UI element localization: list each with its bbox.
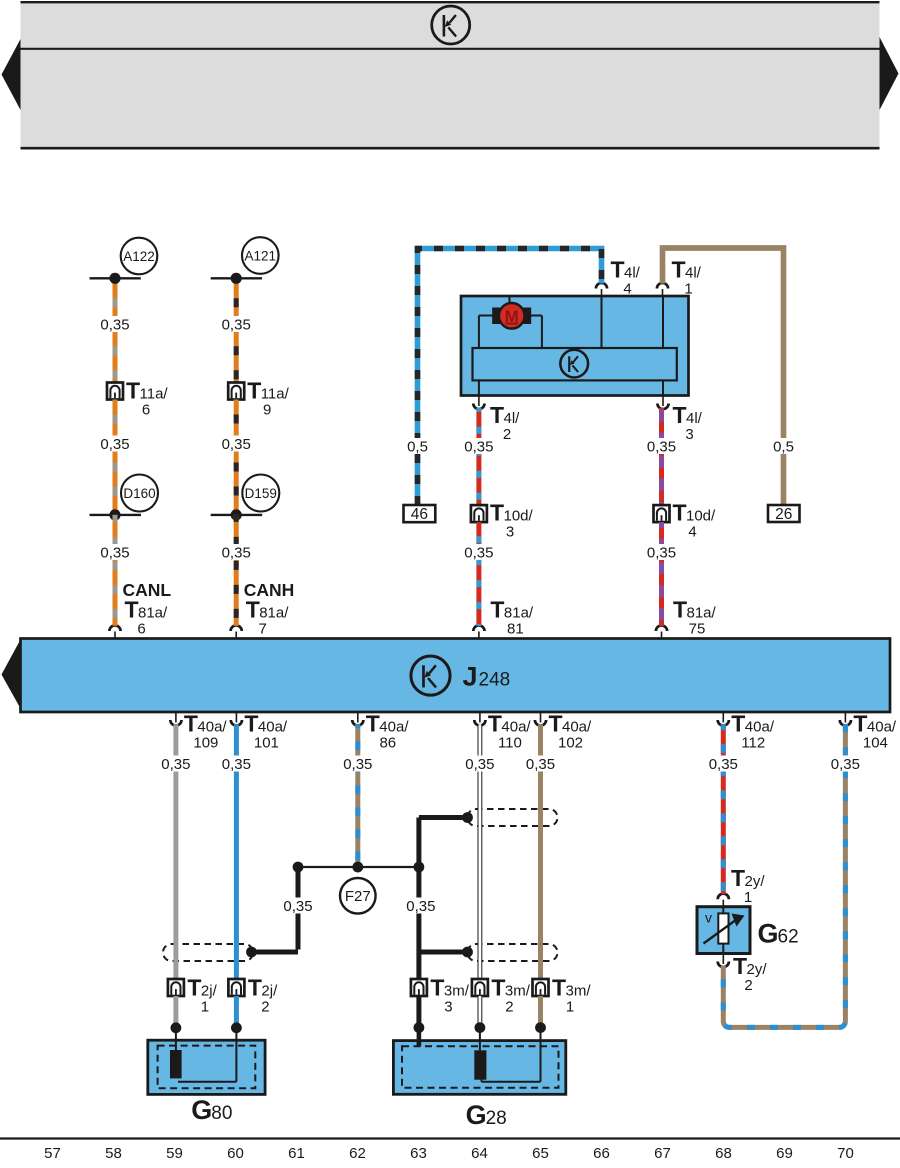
svg-text:0,35: 0,35 <box>831 756 860 773</box>
svg-text:67: 67 <box>654 1145 671 1162</box>
svg-text:81a/: 81a/ <box>138 605 168 622</box>
svg-text:T: T <box>187 975 201 1001</box>
svg-text:G: G <box>466 1100 487 1130</box>
svg-text:T: T <box>733 953 747 979</box>
svg-text:63: 63 <box>410 1145 427 1162</box>
svg-text:T: T <box>248 975 262 1001</box>
svg-text:0,5: 0,5 <box>773 438 794 455</box>
svg-text:68: 68 <box>715 1145 732 1162</box>
svg-text:0,35: 0,35 <box>343 756 372 773</box>
svg-text:T: T <box>731 711 745 737</box>
svg-text:40a/: 40a/ <box>867 719 897 736</box>
svg-text:4: 4 <box>688 524 696 541</box>
svg-text:4l/: 4l/ <box>685 265 702 282</box>
svg-text:2y/: 2y/ <box>747 961 768 978</box>
svg-text:G: G <box>191 1095 212 1125</box>
svg-text:2: 2 <box>505 999 513 1016</box>
svg-text:T: T <box>611 257 625 283</box>
svg-text:v: v <box>705 910 712 926</box>
svg-text:80: 80 <box>211 1103 232 1124</box>
svg-text:11a/: 11a/ <box>261 386 290 403</box>
svg-text:D159: D159 <box>245 486 277 501</box>
svg-text:60: 60 <box>227 1145 244 1162</box>
svg-text:0,35: 0,35 <box>464 544 493 561</box>
svg-text:2j/: 2j/ <box>261 983 278 1000</box>
svg-text:112: 112 <box>741 735 765 752</box>
svg-text:0,35: 0,35 <box>222 756 251 773</box>
svg-text:0,35: 0,35 <box>647 544 676 561</box>
svg-text:3: 3 <box>506 524 514 541</box>
svg-text:1: 1 <box>566 999 574 1016</box>
svg-text:9: 9 <box>263 402 271 419</box>
svg-text:T: T <box>430 975 444 1001</box>
svg-text:58: 58 <box>105 1145 122 1162</box>
svg-text:2y/: 2y/ <box>745 873 766 890</box>
svg-text:64: 64 <box>471 1145 488 1162</box>
svg-text:28: 28 <box>486 1108 507 1129</box>
svg-text:T: T <box>491 975 505 1001</box>
svg-text:1: 1 <box>744 889 752 906</box>
svg-text:0,35: 0,35 <box>222 436 251 453</box>
svg-text:40a/: 40a/ <box>197 719 227 736</box>
svg-text:2: 2 <box>261 999 269 1016</box>
svg-text:T: T <box>673 597 687 623</box>
svg-text:81a/: 81a/ <box>687 605 717 622</box>
svg-text:0,35: 0,35 <box>465 756 494 773</box>
svg-text:2: 2 <box>503 426 511 443</box>
svg-text:86: 86 <box>379 735 396 752</box>
svg-text:101: 101 <box>254 735 279 752</box>
svg-text:T: T <box>247 378 261 404</box>
svg-text:40a/: 40a/ <box>562 719 592 736</box>
svg-text:T: T <box>488 711 502 737</box>
svg-text:59: 59 <box>166 1145 183 1162</box>
svg-text:T: T <box>490 500 504 526</box>
svg-text:57: 57 <box>44 1145 61 1162</box>
svg-text:T: T <box>853 711 867 737</box>
svg-text:40a/: 40a/ <box>258 719 288 736</box>
svg-text:0,35: 0,35 <box>406 898 435 915</box>
svg-text:T: T <box>731 865 745 891</box>
svg-text:0,35: 0,35 <box>222 544 251 561</box>
svg-text:40a/: 40a/ <box>745 719 775 736</box>
svg-text:T: T <box>184 711 198 737</box>
svg-text:T: T <box>366 711 380 737</box>
svg-text:3: 3 <box>444 999 452 1016</box>
svg-text:T: T <box>244 711 258 737</box>
svg-text:0,35: 0,35 <box>161 756 190 773</box>
svg-text:75: 75 <box>689 621 706 638</box>
svg-text:T: T <box>673 500 687 526</box>
svg-text:104: 104 <box>863 735 888 752</box>
svg-text:A121: A121 <box>245 248 277 263</box>
svg-text:F27: F27 <box>345 888 371 905</box>
svg-text:70: 70 <box>837 1145 854 1162</box>
svg-text:T: T <box>126 378 140 404</box>
svg-text:4l/: 4l/ <box>686 410 703 427</box>
svg-text:4l/: 4l/ <box>504 410 521 427</box>
svg-text:3m/: 3m/ <box>444 983 470 1000</box>
svg-text:T: T <box>490 402 504 428</box>
svg-text:3: 3 <box>685 426 693 443</box>
svg-text:62: 62 <box>349 1145 366 1162</box>
svg-text:2j/: 2j/ <box>201 983 218 1000</box>
svg-text:0,35: 0,35 <box>709 756 738 773</box>
svg-text:0,35: 0,35 <box>526 756 555 773</box>
svg-text:81a/: 81a/ <box>259 605 289 622</box>
svg-text:0,35: 0,35 <box>283 898 312 915</box>
svg-text:40a/: 40a/ <box>501 719 531 736</box>
svg-text:10d/: 10d/ <box>686 508 716 525</box>
svg-text:2: 2 <box>744 977 752 994</box>
svg-text:3m/: 3m/ <box>505 983 531 1000</box>
svg-text:46: 46 <box>411 506 428 523</box>
svg-text:110: 110 <box>498 735 522 752</box>
svg-text:T: T <box>125 597 139 623</box>
svg-text:T: T <box>672 257 686 283</box>
svg-text:69: 69 <box>776 1145 793 1162</box>
svg-text:0,35: 0,35 <box>100 544 129 561</box>
svg-text:0,35: 0,35 <box>647 438 676 455</box>
svg-text:109: 109 <box>193 735 218 752</box>
svg-text:26: 26 <box>775 506 792 523</box>
svg-text:G: G <box>758 919 779 949</box>
svg-text:0,35: 0,35 <box>100 316 129 333</box>
svg-text:T: T <box>552 975 566 1001</box>
svg-text:T: T <box>549 711 563 737</box>
svg-text:J: J <box>463 662 478 692</box>
svg-text:81: 81 <box>507 621 524 638</box>
svg-text:6: 6 <box>137 621 145 638</box>
svg-text:3m/: 3m/ <box>566 983 592 1000</box>
svg-text:11a/: 11a/ <box>140 386 169 403</box>
svg-text:0,35: 0,35 <box>222 316 251 333</box>
svg-text:T: T <box>246 597 260 623</box>
svg-text:66: 66 <box>593 1145 610 1162</box>
svg-text:102: 102 <box>558 735 583 752</box>
svg-text:1: 1 <box>201 999 209 1016</box>
svg-text:D160: D160 <box>123 486 155 501</box>
svg-text:7: 7 <box>259 621 267 638</box>
svg-text:T: T <box>673 402 687 428</box>
svg-text:0,35: 0,35 <box>100 436 129 453</box>
svg-text:248: 248 <box>479 670 511 691</box>
svg-text:61: 61 <box>288 1145 305 1162</box>
svg-text:65: 65 <box>532 1145 549 1162</box>
svg-text:6: 6 <box>142 402 150 419</box>
svg-text:81a/: 81a/ <box>504 605 534 622</box>
svg-text:62: 62 <box>778 927 799 948</box>
svg-text:10d/: 10d/ <box>504 508 534 525</box>
svg-text:0,35: 0,35 <box>464 438 493 455</box>
svg-text:T: T <box>490 597 504 623</box>
svg-text:4l/: 4l/ <box>624 265 641 282</box>
svg-text:A122: A122 <box>123 249 155 264</box>
svg-text:40a/: 40a/ <box>379 719 409 736</box>
svg-text:0,5: 0,5 <box>407 438 428 455</box>
